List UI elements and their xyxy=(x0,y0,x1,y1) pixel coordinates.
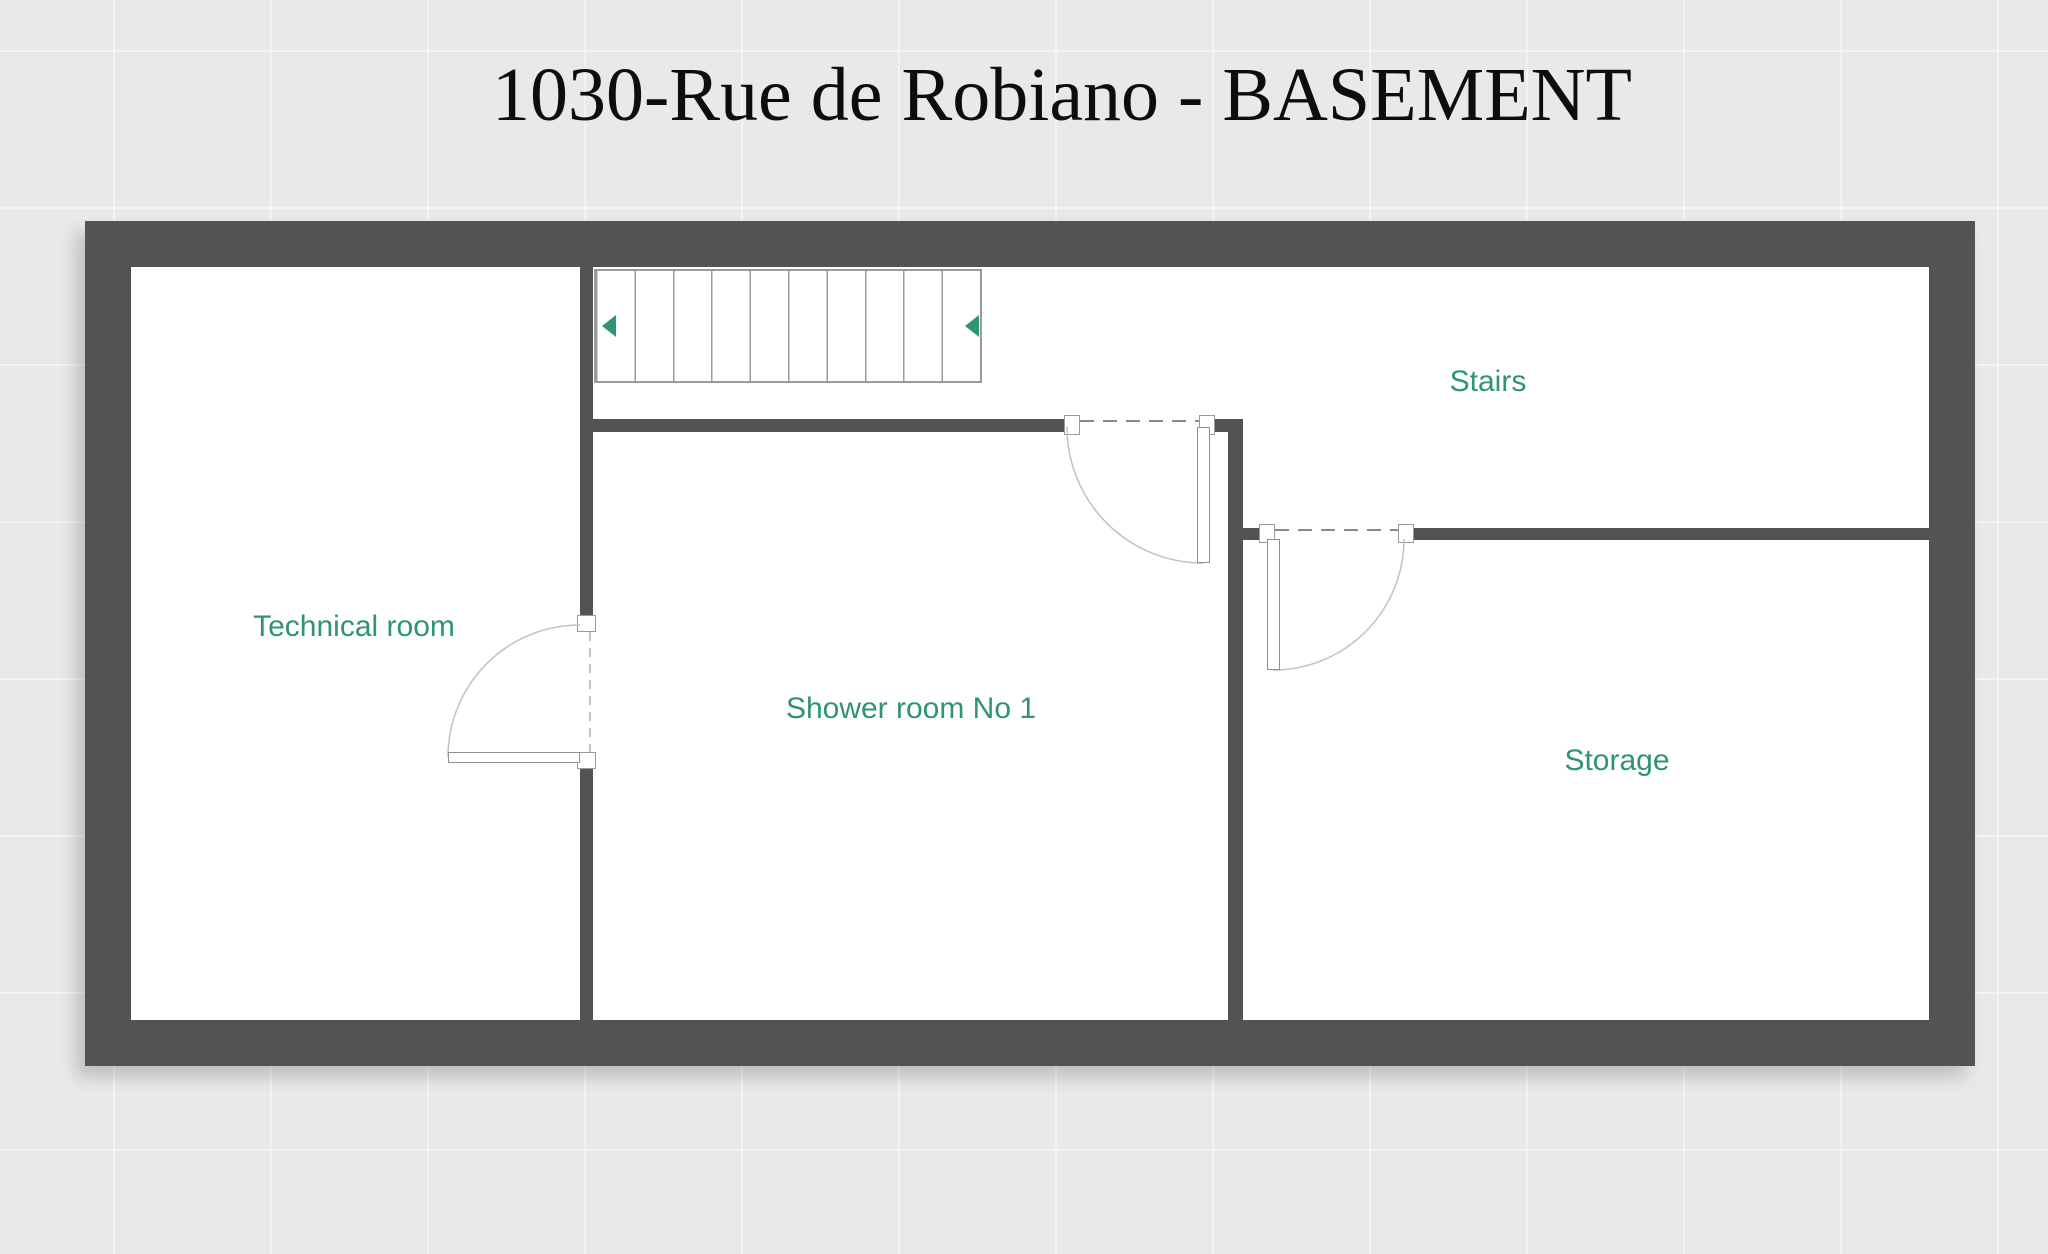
door-leaf-storage xyxy=(1267,539,1280,670)
stairs-direction-left-arrow-icon xyxy=(602,315,616,337)
door-arc-technical xyxy=(448,625,580,757)
interior-wall-technical-bottom xyxy=(580,767,593,1020)
floorplan-outer-wall: Technical room Shower room No 1 Stairs S… xyxy=(85,221,1975,1066)
stairs-direction-right-arrow-icon xyxy=(965,315,979,337)
page-title: 1030-Rue de Robiano - BASEMENT xyxy=(38,52,2048,139)
interior-wall-storage-top xyxy=(1408,528,1929,540)
door-leaf-technical xyxy=(448,752,580,763)
door-jamb-shower-left xyxy=(1064,415,1080,435)
door-jamb-storage-right xyxy=(1398,524,1414,543)
interior-wall-shower-top xyxy=(592,419,1068,432)
floorplan-canvas: 1030-Rue de Robiano - BASEMENT xyxy=(0,0,2048,1254)
door-arc-storage xyxy=(1273,539,1404,670)
door-jamb-technical-top xyxy=(577,615,596,632)
room-label-shower-room: Shower room No 1 xyxy=(786,692,1036,726)
stairs-symbol xyxy=(594,269,982,383)
floorplan-interior: Technical room Shower room No 1 Stairs S… xyxy=(131,267,1929,1020)
room-label-stairs: Stairs xyxy=(1450,365,1527,399)
room-label-technical-room: Technical room xyxy=(253,610,455,644)
room-label-storage: Storage xyxy=(1564,744,1669,778)
interior-wall-shower-storage xyxy=(1228,419,1243,1020)
door-arc-shower xyxy=(1067,427,1203,563)
door-leaf-shower xyxy=(1197,427,1210,563)
interior-wall-technical-top xyxy=(580,267,593,617)
